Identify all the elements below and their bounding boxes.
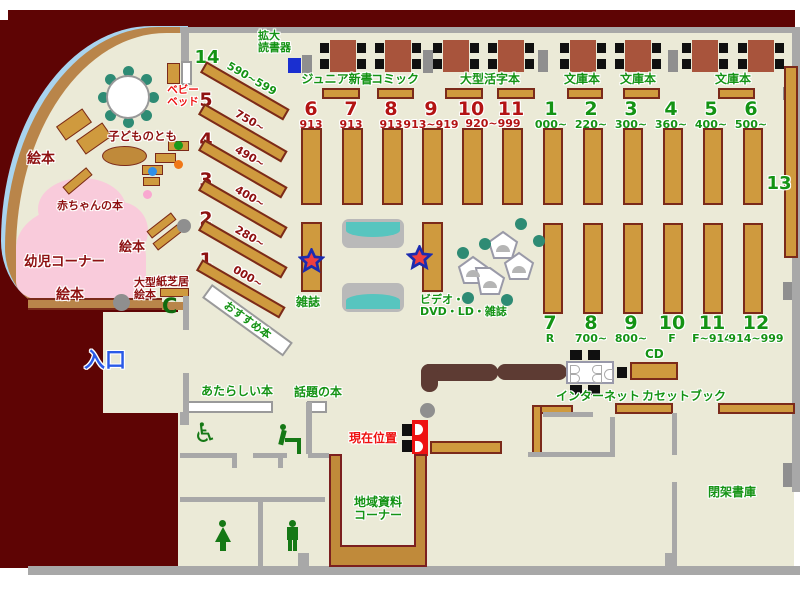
- wall-stub: [180, 412, 189, 425]
- stack-shelf: [623, 128, 643, 205]
- chair: [652, 59, 661, 69]
- star-icon: [408, 247, 430, 268]
- seat: [570, 365, 580, 374]
- door-jamb: [232, 453, 237, 468]
- junior-books-label: ジュニア新書: [301, 73, 373, 86]
- closed-stacks-shelf: [718, 403, 795, 414]
- stack-col-12b: 12914~999: [726, 314, 786, 345]
- cassette-shelf: [615, 403, 673, 414]
- chair-dot: [462, 292, 474, 304]
- chair: [470, 59, 479, 69]
- local-line1: 地域資料: [354, 495, 402, 509]
- chair: [357, 59, 366, 69]
- outside-bottom-left-block: [0, 412, 180, 568]
- local-line2: コーナー: [354, 508, 402, 522]
- chair: [488, 43, 497, 53]
- chair-dot: [457, 247, 469, 259]
- phone-icon: C: [162, 296, 177, 317]
- new-books-label: あたらしい本: [201, 385, 273, 398]
- gate-seat: [415, 441, 423, 452]
- gate-block: [402, 424, 412, 436]
- chair: [775, 43, 784, 53]
- chair-dot: [515, 218, 527, 230]
- step-shelf: [155, 153, 176, 163]
- chair: [588, 350, 600, 360]
- kodomo-no-tomo-label: 子どものとも: [108, 130, 177, 142]
- stack-shelf-lower: [663, 223, 683, 314]
- icon-leg: [293, 540, 297, 551]
- room-wall: [180, 453, 233, 458]
- icon-dress: [215, 527, 231, 542]
- wall-stub: [665, 553, 677, 567]
- corridor-wall: [183, 296, 189, 330]
- bunko-label: 文庫本: [614, 73, 662, 86]
- large-picture-line2: 絵本: [134, 288, 156, 301]
- picture-books-label-2: 絵本: [119, 236, 145, 255]
- stack-shelf: [743, 128, 763, 205]
- chair: [320, 43, 329, 53]
- chair: [470, 43, 479, 53]
- toilet-man-icon: [283, 520, 303, 552]
- chair: [719, 59, 728, 69]
- stack-shelf: [663, 128, 683, 205]
- stack-shelf: [301, 128, 322, 205]
- icon-head: [219, 520, 226, 527]
- reading-table: [443, 40, 469, 72]
- chair: [682, 43, 691, 53]
- stack-shelf: [382, 128, 403, 205]
- magnifying-reader-label: 拡大 読書器: [258, 30, 291, 54]
- curved-bench: [342, 219, 404, 248]
- bench-seat: [346, 222, 400, 237]
- service-counter-pill: [497, 364, 567, 380]
- baby-bed-line1: ベビー: [167, 84, 199, 96]
- room-wall: [306, 402, 312, 454]
- chair: [560, 59, 569, 69]
- stack-shelf: [543, 128, 563, 205]
- closed-stacks-wall: [672, 482, 677, 555]
- stack-shelf: [583, 128, 603, 205]
- chair: [525, 43, 534, 53]
- icon-leg: [288, 540, 292, 551]
- chair: [617, 367, 627, 378]
- room-wall: [610, 417, 615, 457]
- cushion-pink: [143, 190, 152, 199]
- chair: [719, 43, 728, 53]
- chair: [488, 59, 497, 69]
- current-location-label: 現在位置: [349, 432, 397, 445]
- room-wall: [543, 412, 593, 417]
- chair: [775, 59, 784, 69]
- toilet-woman-icon: [212, 520, 232, 552]
- stack-shelf: [342, 128, 363, 205]
- baby-books-label: 赤ちゃんの本: [57, 200, 123, 212]
- chair-dot: [501, 294, 513, 306]
- icon-body: [287, 527, 298, 540]
- chair: [615, 43, 624, 53]
- chair-dot: [479, 238, 491, 250]
- closed-stacks-wall: [672, 413, 677, 455]
- cd-shelf: [630, 362, 678, 380]
- stack-shelf-lower: [623, 223, 643, 314]
- pillar-dot: [177, 219, 191, 233]
- icon-head: [289, 520, 296, 527]
- baby-bed-label: ベビー ベッド: [166, 84, 200, 108]
- service-counter-l-arm: [421, 364, 438, 392]
- toddler-corner-label: 幼児コーナー: [24, 250, 105, 270]
- room-wall: [308, 453, 329, 458]
- round-table-top: [106, 75, 150, 119]
- carrel-tables: [450, 212, 550, 307]
- reading-table: [570, 40, 596, 72]
- stack-shelf: [422, 128, 443, 205]
- reading-table: [385, 40, 411, 72]
- magazine-label: 雑誌: [296, 296, 320, 309]
- reading-table: [498, 40, 524, 72]
- corridor-wall: [183, 373, 189, 412]
- large-print-label: 大型活字本: [456, 73, 524, 86]
- bunko-label: 文庫本: [709, 73, 757, 86]
- entrance-label: 入口: [84, 344, 126, 374]
- chair: [525, 59, 534, 69]
- chair: [570, 350, 582, 360]
- baby-bed-line2: ベッド: [167, 96, 199, 108]
- current-location-marker: [412, 420, 428, 456]
- gate-block: [402, 440, 412, 452]
- chair: [652, 43, 661, 53]
- chair: [375, 59, 384, 69]
- stack-shelf-lower: [583, 223, 603, 314]
- side-shelf-13: [784, 66, 798, 258]
- chair: [375, 43, 384, 53]
- bunko-label: 文庫本: [558, 73, 606, 86]
- reader-line2: 読書器: [258, 41, 291, 54]
- toilet-wall: [263, 497, 325, 502]
- baby-change-icon: [277, 424, 303, 454]
- reading-table: [748, 40, 774, 72]
- right-wall-pillar: [783, 282, 792, 300]
- star-marker: [406, 245, 433, 272]
- chair: [560, 43, 569, 53]
- picture-books-label-1: 絵本: [27, 148, 55, 168]
- local-materials-corner: 地域資料 コーナー: [329, 454, 427, 567]
- icon-leg: [223, 542, 226, 551]
- curved-bench: [342, 283, 404, 312]
- side-shelf-13-label: 13: [764, 174, 794, 193]
- stack-shelf-lower: [703, 223, 723, 314]
- comic-label: コミック: [371, 73, 419, 86]
- chair: [433, 59, 442, 69]
- seat: [592, 374, 602, 383]
- oval-table: [102, 146, 147, 166]
- kamishibai-label: 紙芝居: [156, 276, 189, 288]
- gate-seat: [415, 424, 423, 435]
- stack-shelf: [703, 128, 723, 205]
- cd-label: CD: [645, 348, 664, 361]
- internet-table: [566, 361, 614, 384]
- chair: [357, 43, 366, 53]
- bottom-wall: [28, 566, 800, 575]
- chair: [597, 43, 606, 53]
- reading-table: [692, 40, 718, 72]
- local-materials-floor: 地域資料 コーナー: [340, 454, 416, 547]
- return-shelf: [430, 441, 502, 454]
- topic-books-label: 話題の本: [294, 386, 342, 399]
- chair: [738, 43, 747, 53]
- stack-shelf-lower: [743, 223, 763, 314]
- wall-stub: [298, 553, 309, 567]
- cassette-label: カセットブック: [642, 390, 726, 403]
- pillar: [668, 50, 678, 72]
- door-jamb: [278, 453, 283, 468]
- bench-seat: [346, 294, 400, 309]
- corner-shelf-v: [532, 405, 542, 455]
- pillar-dot: [420, 403, 435, 418]
- chair: [433, 43, 442, 53]
- reading-table: [330, 40, 356, 72]
- closed-stacks-label: 閉架書庫: [708, 486, 756, 499]
- stack-shelf: [502, 128, 523, 205]
- seat: [570, 374, 580, 383]
- step-shelf: [143, 177, 160, 186]
- local-materials-label: 地域資料 コーナー: [342, 496, 414, 522]
- library-floor-map: ベビー ベッド 子どものとも 絵本 赤ちゃんの本 絵本 幼児コーナー 絵本 大型…: [0, 0, 800, 600]
- round-table: [97, 66, 159, 128]
- chair: [597, 59, 606, 69]
- picture-books-label-3: 絵本: [56, 284, 84, 304]
- bunko-col-6: 6500~: [721, 100, 781, 131]
- star-icon: [300, 250, 322, 271]
- baby-bed-white: [181, 61, 192, 85]
- magnifying-reader-device: [288, 58, 301, 73]
- pillar-dot: [113, 294, 130, 311]
- new-books-shelf: [187, 401, 273, 413]
- toilet-divider: [258, 497, 263, 567]
- cushion-blue: [148, 167, 157, 176]
- chair: [738, 59, 747, 69]
- internet-label: インターネット: [556, 390, 640, 403]
- seat: [592, 365, 602, 374]
- seat: [604, 369, 613, 380]
- chair-dot: [533, 235, 545, 247]
- cushion-orange: [174, 160, 183, 169]
- wheelchair-icon: ♿: [193, 420, 217, 448]
- pillar: [302, 55, 312, 73]
- chair: [682, 59, 691, 69]
- baby-bed-brown: [167, 63, 180, 84]
- stack-shelf: [462, 128, 483, 205]
- chair: [615, 59, 624, 69]
- toilet-wall: [180, 497, 258, 502]
- pillar: [538, 50, 548, 72]
- chair: [412, 59, 421, 69]
- chair: [412, 43, 421, 53]
- reading-table: [625, 40, 651, 72]
- icon-table-leg: [297, 442, 301, 454]
- room-wall: [528, 452, 615, 457]
- pillar: [423, 50, 433, 73]
- right-wall-pillar: [783, 463, 792, 487]
- star-marker: [298, 248, 325, 275]
- chair: [320, 59, 329, 69]
